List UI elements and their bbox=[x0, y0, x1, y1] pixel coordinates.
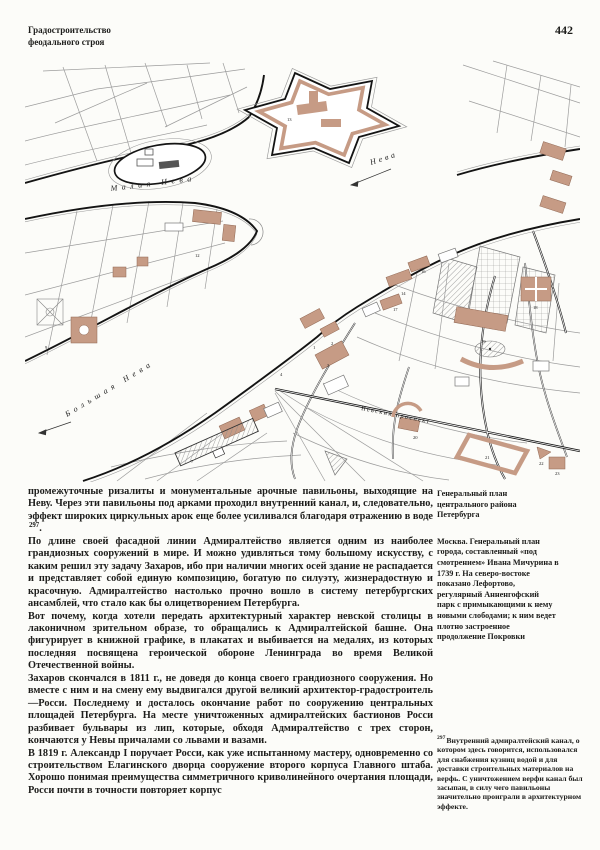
page-number: 442 bbox=[555, 23, 573, 38]
svg-text:16: 16 bbox=[421, 269, 426, 274]
svg-text:19: 19 bbox=[481, 339, 486, 344]
svg-text:23: 23 bbox=[555, 471, 560, 476]
svg-text:13: 13 bbox=[287, 117, 292, 122]
general-staff-arc bbox=[461, 359, 523, 368]
paragraph-4: Захаров скончался в 1811 г., не доведя д… bbox=[28, 673, 433, 748]
main-text: промежуточные ризалиты и монументальные … bbox=[28, 486, 433, 797]
city-plan-map: Малая Нева Нева Большая Нева Невский про… bbox=[25, 60, 580, 482]
figure-caption: Генеральный план центрального района Пет… bbox=[437, 489, 559, 643]
paragraph-5: В 1819 г. Александр I поручает Росси, ка… bbox=[28, 748, 433, 798]
city-plan-figure: Малая Нева Нева Большая Нева Невский про… bbox=[25, 60, 580, 482]
svg-text:17: 17 bbox=[393, 307, 398, 312]
label-neva: Нева bbox=[368, 149, 399, 167]
footnote-marker: 297 bbox=[437, 735, 445, 741]
figure-caption-note: Москва. Генеральный план города, составл… bbox=[437, 537, 559, 643]
svg-text:12: 12 bbox=[195, 253, 200, 258]
figure-caption-title: Генеральный план центрального района Пет… bbox=[437, 489, 559, 521]
book-page: { "page": { "header_line1": "Градостроит… bbox=[0, 0, 600, 850]
running-head: Градостроительство феодального строя bbox=[28, 25, 111, 48]
svg-text:18: 18 bbox=[533, 305, 538, 310]
svg-text:4: 4 bbox=[280, 372, 283, 377]
paragraph-1: промежуточные ризалиты и монументальные … bbox=[28, 486, 433, 536]
running-head-line2: феодального строя bbox=[28, 37, 111, 49]
paragraph-2: По длине своей фасадной линии Адмиралтей… bbox=[28, 536, 433, 611]
footnote-reference: 297 bbox=[29, 522, 39, 529]
paragraph-3: Вот почему, когда хотели передать архите… bbox=[28, 611, 433, 673]
paragraph-1-tail: . bbox=[39, 523, 42, 534]
parks bbox=[37, 246, 555, 475]
svg-text:22: 22 bbox=[539, 461, 544, 466]
label-bolshaya-neva: Большая Нева bbox=[63, 358, 156, 419]
admiralty-building bbox=[175, 418, 261, 472]
gostiny-dvor bbox=[457, 435, 527, 473]
paragraph-1-text: промежуточные ризалиты и монументальные … bbox=[28, 486, 433, 522]
running-head-line1: Градостроительство bbox=[28, 25, 111, 37]
svg-text:21: 21 bbox=[485, 455, 490, 460]
svg-text:20: 20 bbox=[413, 435, 418, 440]
park-circle bbox=[79, 325, 89, 335]
footnote-text: Внутренний адмиралтейский канал, о котор… bbox=[437, 736, 583, 811]
svg-text:1: 1 bbox=[313, 345, 316, 350]
footnote: 297Внутренний адмиралтейский канал, о ко… bbox=[437, 736, 585, 811]
svg-text:14: 14 bbox=[401, 291, 406, 296]
palace-square-oval bbox=[475, 341, 505, 357]
